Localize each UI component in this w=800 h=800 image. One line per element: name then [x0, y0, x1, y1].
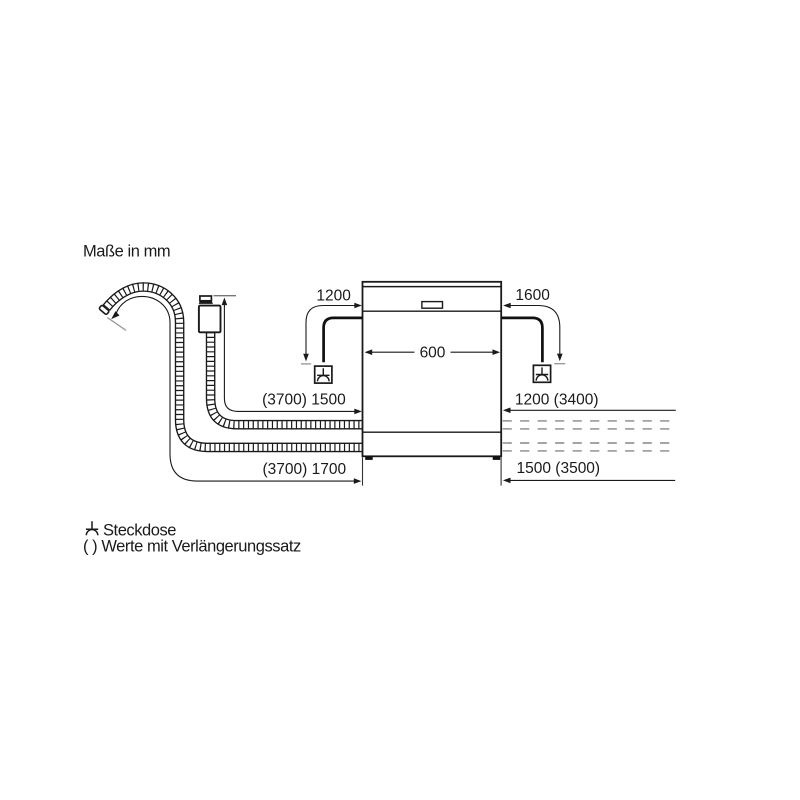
svg-text:1600: 1600: [515, 287, 550, 304]
svg-text:1200: 1200: [316, 288, 351, 305]
svg-text:600: 600: [420, 345, 446, 362]
svg-text:1200 (3400): 1200 (3400): [515, 392, 599, 409]
svg-text:Maße in mm: Maße in mm: [83, 243, 170, 261]
svg-text:( ) Werte mit Verlängerungssat: ( ) Werte mit Verlängerungssatz: [83, 538, 301, 556]
svg-text:(3700) 1700: (3700) 1700: [263, 461, 347, 478]
svg-text:(3700) 1500: (3700) 1500: [262, 392, 346, 409]
svg-text:1500 (3500): 1500 (3500): [517, 460, 601, 477]
